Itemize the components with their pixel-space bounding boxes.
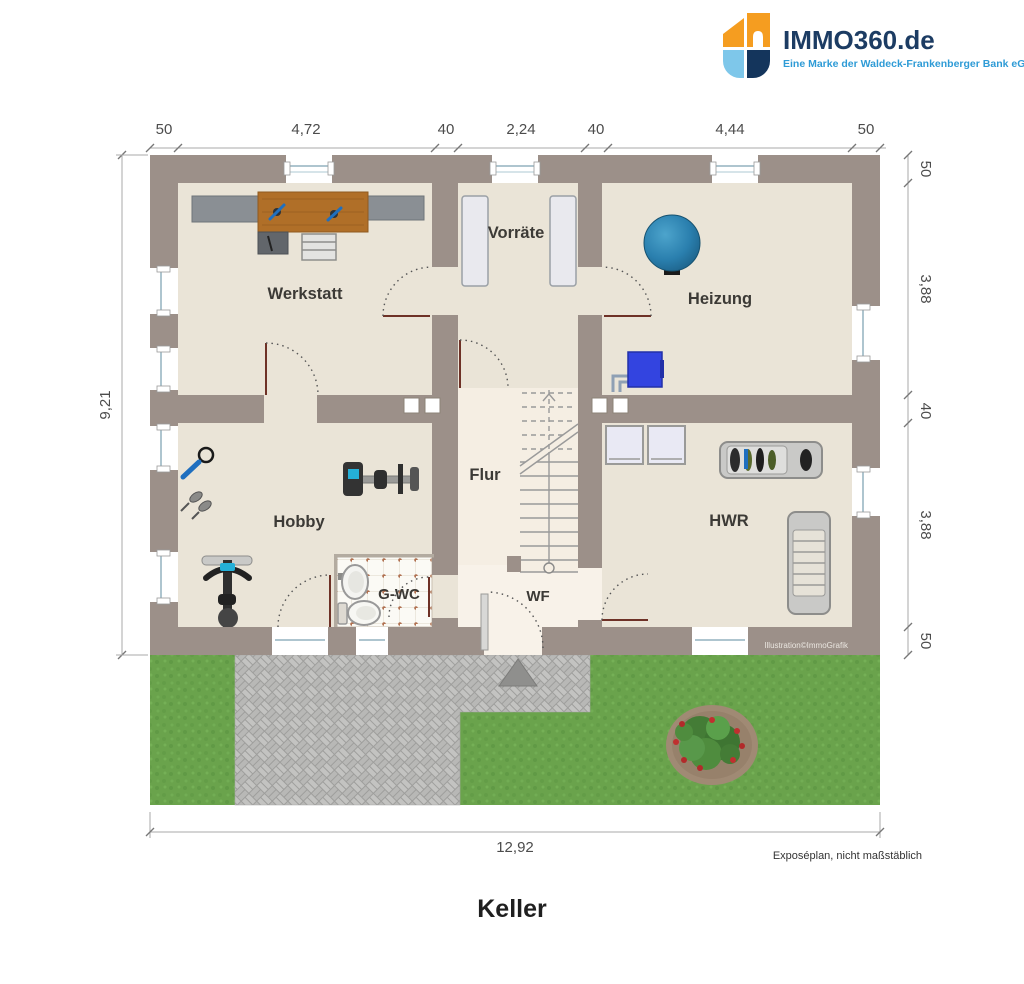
dimension-right: 50 3,88 40 3,88 50 bbox=[904, 151, 934, 659]
window-icon bbox=[490, 155, 540, 183]
shelf-icon bbox=[462, 196, 488, 286]
window-icon bbox=[710, 155, 760, 183]
floor-title: Keller bbox=[477, 895, 547, 923]
dim-label: 4,44 bbox=[715, 121, 744, 138]
drying-rack-empty-icon bbox=[788, 512, 830, 614]
scale-note: Exposéplan, nicht maßstäblich bbox=[773, 850, 922, 862]
window-icon bbox=[852, 466, 880, 518]
drying-rack-full-icon bbox=[720, 442, 822, 478]
garden bbox=[150, 655, 880, 805]
window-icon bbox=[692, 627, 748, 655]
chimney-flue bbox=[592, 398, 607, 413]
brand-logo: IMMO360.de Eine Marke der Waldeck-Franke… bbox=[723, 13, 1024, 78]
bush-icon bbox=[666, 705, 758, 785]
dim-label: 50 bbox=[858, 121, 875, 138]
room-label-hobby: Hobby bbox=[273, 513, 325, 531]
dim-label: 50 bbox=[156, 121, 173, 138]
chimney-flue bbox=[425, 398, 440, 413]
toilet-icon bbox=[338, 601, 380, 625]
room-label-wf: WF bbox=[526, 588, 549, 605]
room-label-heizung: Heizung bbox=[688, 290, 752, 308]
window-icon bbox=[150, 550, 178, 604]
dim-label: 12,92 bbox=[496, 839, 534, 856]
room-label-hwr: HWR bbox=[709, 512, 748, 530]
window-icon bbox=[150, 266, 178, 316]
window-icon bbox=[356, 627, 388, 655]
gwc-partition bbox=[334, 554, 434, 558]
exterior-door-icon bbox=[272, 627, 328, 655]
chimney-flue bbox=[613, 398, 628, 413]
dim-label: 50 bbox=[917, 633, 934, 650]
entrance-opening bbox=[484, 627, 542, 655]
dim-label: 3,88 bbox=[917, 510, 934, 539]
dimension-left: 9,21 bbox=[97, 151, 148, 659]
window-icon bbox=[284, 155, 334, 183]
dimension-top: 50 4,72 40 2,24 40 4,44 50 bbox=[146, 121, 886, 152]
entrance-door-leaf bbox=[481, 594, 488, 650]
room-label-flur: Flur bbox=[469, 466, 501, 484]
illustration-copyright: Illustration©ImmoGrafik bbox=[764, 641, 849, 650]
shelf-icon bbox=[550, 196, 576, 286]
room-label-vorraete: Vorräte bbox=[488, 224, 545, 242]
floorplan-canvas: IMMO360.de Eine Marke der Waldeck-Franke… bbox=[0, 0, 1024, 984]
chimney-flue bbox=[404, 398, 419, 413]
dim-label: 9,21 bbox=[97, 390, 114, 419]
dim-label: 40 bbox=[917, 403, 934, 420]
dim-label: 4,72 bbox=[291, 121, 320, 138]
dim-label: 50 bbox=[917, 161, 934, 178]
staircase bbox=[520, 388, 578, 573]
window-icon bbox=[150, 346, 178, 392]
window-icon bbox=[150, 424, 178, 472]
dim-label: 40 bbox=[438, 121, 455, 138]
dim-label: 40 bbox=[588, 121, 605, 138]
window-icon bbox=[852, 304, 880, 362]
floorplan-page: IMMO360.de Eine Marke der Waldeck-Franke… bbox=[0, 0, 1024, 984]
room-label-werkstatt: Werkstatt bbox=[268, 285, 343, 303]
dim-label: 2,24 bbox=[506, 121, 535, 138]
step-ladder-icon bbox=[302, 234, 336, 260]
brand-tagline: Eine Marke der Waldeck-Frankenberger Ban… bbox=[783, 58, 1024, 70]
room-label-gwc: G-WC bbox=[378, 586, 420, 603]
dim-label: 3,88 bbox=[917, 274, 934, 303]
brand-house-icon bbox=[723, 13, 770, 78]
brand-name: IMMO360.de bbox=[783, 25, 935, 55]
